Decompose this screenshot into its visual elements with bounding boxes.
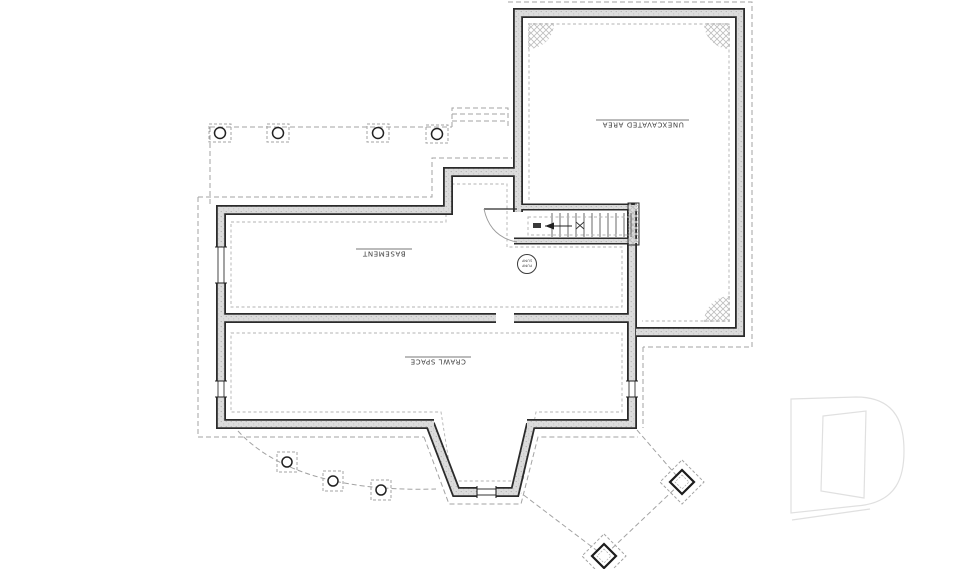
hatch-pad-bottom-right	[704, 296, 730, 322]
porch-steps-dashed	[452, 108, 508, 127]
deck-post-upper	[660, 460, 704, 504]
interior-inset-dashed	[231, 24, 729, 481]
floor-plan-canvas: SUMP PUMP UNEXCAVATED AREA B	[0, 0, 960, 569]
sump-pump: SUMP PUMP	[518, 255, 537, 274]
stair-direction-mark	[533, 223, 541, 228]
basement-inset	[231, 184, 622, 307]
terrace-columns	[277, 452, 391, 500]
porch-columns	[215, 128, 443, 140]
door-swing-arc	[484, 209, 517, 242]
basement-door	[484, 209, 517, 242]
crawl-space-text: CRAWL SPACE	[410, 358, 466, 366]
deck	[521, 430, 704, 569]
d-logo-inner	[821, 411, 866, 498]
hatch-pad-top-right	[704, 23, 730, 49]
porch-outline	[209, 108, 508, 204]
deck-post-lower	[582, 534, 626, 569]
stair-arrow-head	[545, 223, 554, 230]
floor-plan-drawing: SUMP PUMP UNEXCAVATED AREA B	[0, 0, 960, 569]
walls	[221, 13, 740, 492]
room-label-unexcavated: UNEXCAVATED AREA	[596, 120, 689, 129]
stairs	[528, 213, 632, 237]
top-footing-dashed	[198, 158, 512, 197]
windows	[215, 247, 638, 498]
unexcavated-area-text: UNEXCAVATED AREA	[602, 121, 684, 129]
crawl-left-window	[215, 381, 227, 397]
bay-window	[477, 486, 496, 498]
basement-left-window	[215, 247, 227, 283]
sump-label-line2: PUMP	[522, 264, 532, 268]
d-logo-base-line	[792, 509, 870, 520]
basement-text: BASEMENT	[362, 250, 405, 258]
hatch-pad-top-left	[528, 23, 554, 49]
stair-end-pier	[628, 203, 639, 245]
crawl-right-window	[626, 381, 638, 397]
room-label-basement: BASEMENT	[356, 249, 412, 258]
stair-break-mark	[576, 222, 584, 229]
sump-label-line1: SUMP	[522, 259, 532, 263]
d-logo-watermark	[791, 397, 904, 520]
room-label-crawl-space: CRAWL SPACE	[405, 357, 471, 366]
porch-dashed-edge	[210, 127, 452, 204]
